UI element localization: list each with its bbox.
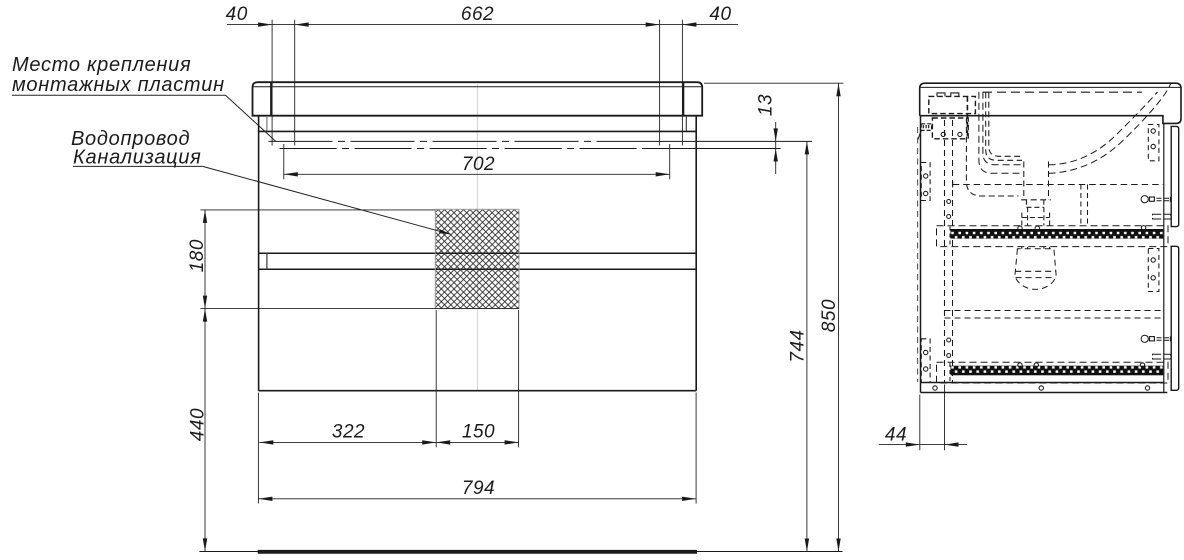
svg-text:744: 744 bbox=[788, 329, 809, 362]
svg-text:850: 850 bbox=[819, 299, 840, 332]
svg-text:44: 44 bbox=[885, 425, 907, 446]
svg-text:13: 13 bbox=[756, 94, 777, 116]
svg-text:702: 702 bbox=[462, 154, 495, 175]
svg-text:монтажных пластин: монтажных пластин bbox=[12, 74, 225, 96]
svg-text:440: 440 bbox=[188, 408, 209, 441]
svg-text:150: 150 bbox=[462, 422, 495, 443]
svg-text:40: 40 bbox=[709, 4, 731, 25]
svg-text:794: 794 bbox=[462, 478, 495, 499]
svg-text:180: 180 bbox=[187, 239, 208, 272]
svg-text:322: 322 bbox=[332, 422, 365, 443]
svg-text:Место крепления: Место крепления bbox=[12, 54, 191, 76]
svg-text:40: 40 bbox=[226, 4, 248, 25]
svg-text:Канализация: Канализация bbox=[73, 146, 202, 168]
svg-text:662: 662 bbox=[461, 4, 494, 25]
